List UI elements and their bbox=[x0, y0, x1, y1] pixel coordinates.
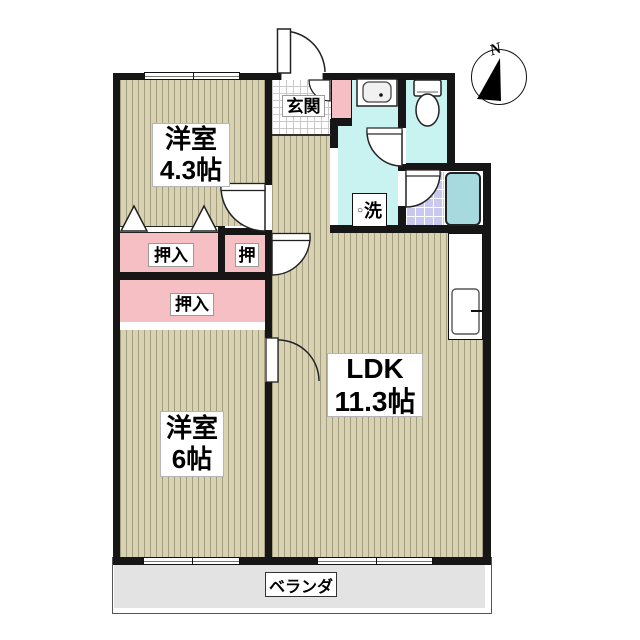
entrance-door-arc bbox=[283, 31, 325, 72]
room-name: 洋室 bbox=[166, 413, 218, 444]
wall-center-1 bbox=[265, 79, 272, 185]
toilet-floor bbox=[406, 79, 447, 163]
wall-below-closets bbox=[113, 272, 272, 280]
laundry-text: 洗 bbox=[364, 197, 382, 223]
entrance-door-leaf bbox=[278, 29, 291, 73]
gap-room43-door bbox=[265, 185, 272, 230]
window-pane-line bbox=[318, 561, 432, 562]
wall-left bbox=[113, 73, 120, 565]
laundry-marker-icon: ○ bbox=[357, 205, 363, 216]
window-center-tick bbox=[376, 558, 377, 564]
bathtub-area bbox=[444, 171, 483, 227]
veranda-label: ベランダ bbox=[265, 572, 337, 597]
gap-toilet-door bbox=[398, 128, 406, 164]
room-name: 洋室 bbox=[165, 124, 217, 155]
closet-label: 押 bbox=[239, 247, 256, 264]
wall-center-2 bbox=[265, 230, 272, 338]
closet-folding-door-band bbox=[120, 226, 218, 233]
room-label-ldk: LDK 11.3帖 bbox=[327, 353, 423, 417]
window-room6-south bbox=[143, 557, 240, 565]
shoe-cabinet bbox=[331, 79, 352, 119]
wall-washroom-toilet-1 bbox=[398, 73, 406, 128]
wall-washroom-stub-1 bbox=[330, 119, 338, 148]
window-ldk-south bbox=[317, 557, 433, 565]
wall-bath-step bbox=[398, 163, 491, 171]
room-name: LDK bbox=[346, 352, 404, 385]
wall-bottom-1 bbox=[113, 557, 143, 565]
window-pane-line bbox=[145, 76, 239, 77]
washroom-doorway bbox=[330, 148, 338, 225]
veranda-text: ベランダ bbox=[269, 573, 333, 597]
room-size: 4.3帖 bbox=[160, 155, 222, 186]
wall-washroom-stub-2 bbox=[330, 225, 338, 233]
washroom-floor-left bbox=[338, 126, 352, 228]
floor-plan: 洋室 4.3帖 LDK 11.3帖 洋室 6帖 玄関 押入 押 押入 ○洗 ベラ… bbox=[0, 0, 640, 640]
closet-label-top: 押入 bbox=[148, 243, 194, 267]
room-size: 11.3帖 bbox=[335, 385, 416, 418]
wall-right-main bbox=[483, 163, 491, 565]
entrance-label: 玄関 bbox=[287, 98, 321, 115]
entrance-step-line bbox=[272, 134, 331, 136]
window-room43-north bbox=[144, 72, 240, 80]
wall-oshi-top bbox=[218, 228, 272, 235]
wall-washroom-bath bbox=[398, 206, 406, 233]
closet-label: 押入 bbox=[175, 296, 209, 313]
entrance-threshold bbox=[281, 73, 323, 80]
wall-top-3 bbox=[323, 73, 455, 80]
room-size: 6帖 bbox=[172, 444, 212, 475]
wall-center-3 bbox=[265, 382, 272, 557]
room-label-entrance: 玄関 bbox=[282, 95, 325, 117]
wall-bottom-2 bbox=[240, 557, 317, 565]
closet-label-bottom: 押入 bbox=[170, 293, 214, 316]
closet-label-small: 押 bbox=[235, 243, 259, 267]
gap-room6-door bbox=[265, 338, 272, 382]
window-center-tick bbox=[192, 558, 193, 564]
bathroom-floor bbox=[406, 171, 444, 227]
gap-bath-door bbox=[398, 171, 406, 206]
room-label-western-6: 洋室 6帖 bbox=[160, 411, 224, 477]
hallway-floor bbox=[272, 135, 330, 233]
room-label-western-4-3: 洋室 4.3帖 bbox=[152, 123, 230, 187]
laundry-label: ○洗 bbox=[352, 193, 387, 227]
wall-toilet-right bbox=[447, 73, 455, 171]
window-center-tick bbox=[193, 73, 194, 79]
closet-label: 押入 bbox=[154, 247, 188, 264]
wall-top-2 bbox=[240, 73, 281, 80]
kitchen-counter bbox=[448, 233, 483, 340]
